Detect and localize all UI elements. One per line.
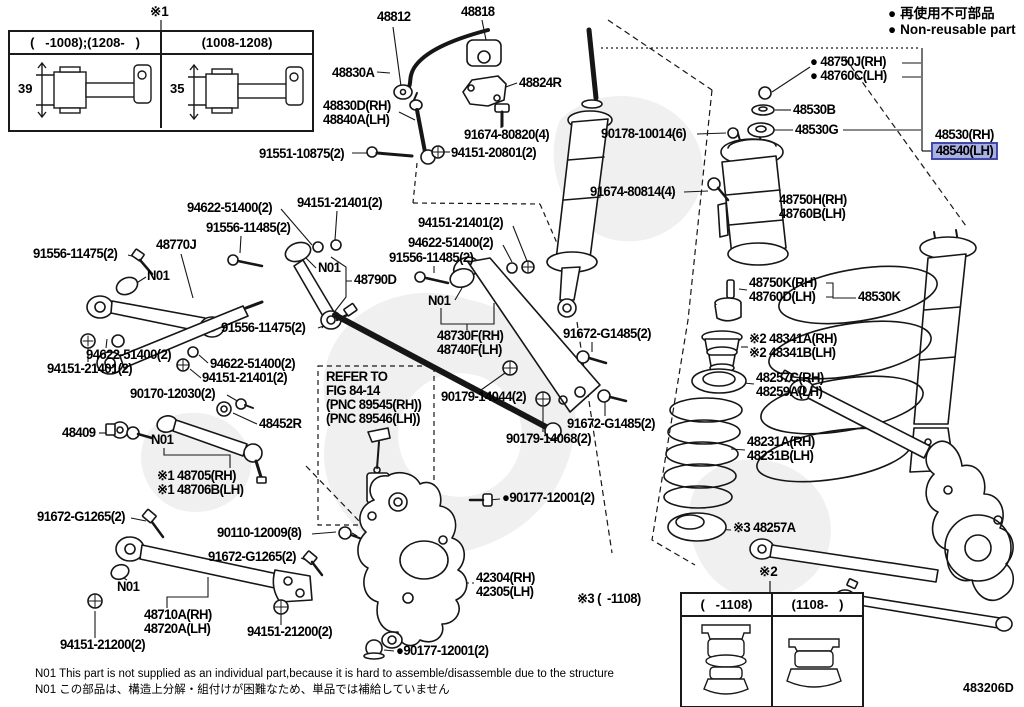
part-number-label[interactable]: 90178-10014(6) — [601, 127, 686, 141]
part-number-label[interactable]: 48818 — [461, 5, 495, 19]
note-label: N01 — [318, 261, 340, 275]
note-label: N01 — [117, 580, 139, 594]
note-label: ※3 ( -1108) — [577, 592, 641, 606]
part-number-label[interactable]: 91556-11475(2) — [33, 247, 117, 261]
part-number-label[interactable]: 91672-G1265(2) — [208, 550, 296, 564]
part-number-label[interactable]: 94622-51400(2) — [187, 201, 272, 215]
part-number-label[interactable]: 94151-21401(2) — [297, 196, 382, 210]
part-number-label[interactable]: 48750K(RH)48760D(LH) — [749, 276, 817, 304]
part-number-label[interactable]: 90179-14044(2) — [441, 390, 526, 404]
part-number-label[interactable]: ● 48750J(RH)● 48760C(LH) — [810, 55, 887, 83]
part-number-label[interactable]: 48409 — [62, 426, 96, 440]
part-number-label[interactable]: 91674-80820(4) — [464, 128, 549, 142]
note-label: N01 — [151, 433, 173, 447]
part-number-label[interactable]: 91556-11485(2) — [206, 221, 290, 235]
part-number-label[interactable]: 48830A — [332, 66, 374, 80]
part-number-label[interactable]: 91551-10875(2) — [259, 147, 344, 161]
note-label: N01 — [428, 294, 450, 308]
part-number-label[interactable]: 48540(LH) — [931, 142, 998, 160]
footnotes: N01 This part is not supplied as an indi… — [35, 666, 614, 698]
part-number-label[interactable]: 94151-21401(2) — [418, 216, 503, 230]
part-number-label[interactable]: 94151-21200(2) — [60, 638, 145, 652]
part-number-label[interactable]: 48824R — [519, 76, 561, 90]
part-number-label[interactable]: ●90177-12001(2) — [502, 491, 594, 505]
part-number-label[interactable]: 94622-51400(2) — [210, 357, 295, 371]
part-number-label[interactable]: 91674-80814(4) — [590, 185, 675, 199]
part-number-label[interactable]: 91672-G1485(2) — [563, 327, 651, 341]
note-label: REFER TOFIG 84-14(PNC 89545(RH))(PNC 895… — [326, 370, 421, 426]
part-number-label[interactable]: 48257C(RH)48259A(LH) — [756, 371, 824, 399]
part-number-label[interactable]: 91672-G1485(2) — [567, 417, 655, 431]
part-number-label[interactable]: 48231A(RH)48231B(LH) — [747, 435, 815, 463]
part-number-label[interactable]: 91672-G1265(2) — [37, 510, 125, 524]
part-number-label[interactable]: 42304(RH)42305(LH) — [476, 571, 535, 599]
part-number-label[interactable]: ※3 48257A — [733, 521, 796, 535]
document-code: 483206D — [963, 681, 1014, 695]
part-number-label[interactable]: 48710A(RH)48720A(LH) — [144, 608, 212, 636]
part-number-label[interactable]: 48730F(RH)48740F(LH) — [437, 329, 503, 357]
part-number-label[interactable]: 94622-51400(2) — [408, 236, 493, 250]
part-number-label[interactable]: 90179-14068(2) — [506, 432, 591, 446]
parts-diagram-page: ●再使用不可部品 ●Non-reusable part ※1 ( -1008);… — [0, 0, 1024, 707]
part-number-label[interactable]: 94151-21401(2) — [202, 371, 287, 385]
part-number-label[interactable]: 48830D(RH)48840A(LH) — [323, 99, 391, 127]
footnote-jp: N01 この部品は、構造上分解・組付けが困難なため、単品では補給していません — [35, 682, 614, 698]
part-number-label[interactable]: 48770J — [156, 238, 196, 252]
part-number-label[interactable]: 94151-21401(2) — [47, 362, 132, 376]
part-number-label[interactable]: ●90177-12001(2) — [396, 644, 488, 658]
part-number-label[interactable]: ※2 48341A(RH)※2 48341B(LH) — [749, 332, 837, 360]
part-number-label[interactable]: 91556-11475(2) — [221, 321, 305, 335]
part-number-label[interactable]: ※1 48705(RH)※1 48706B(LH) — [157, 469, 243, 497]
part-number-label[interactable]: 90110-12009(8) — [217, 526, 301, 540]
part-number-label[interactable]: 48530B — [793, 103, 835, 117]
part-number-label[interactable]: 90170-12030(2) — [130, 387, 215, 401]
part-number-label[interactable]: 48530G — [795, 123, 838, 137]
note-label: N01 — [147, 269, 169, 283]
part-number-label[interactable]: 94151-20801(2) — [451, 146, 536, 160]
labels-layer: 488124881848830A48824R48830D(RH)48840A(L… — [0, 0, 1024, 707]
part-number-label[interactable]: 48452R — [259, 417, 301, 431]
part-number-label[interactable]: 48812 — [377, 10, 411, 24]
footnote-en: N01 This part is not supplied as an indi… — [35, 666, 614, 682]
part-number-label[interactable]: 94151-21200(2) — [247, 625, 332, 639]
part-number-label[interactable]: 94622-51400(2) — [86, 348, 171, 362]
part-number-label[interactable]: 48530(RH) — [935, 128, 994, 142]
part-number-label[interactable]: 48750H(RH)48760B(LH) — [779, 193, 847, 221]
part-number-label[interactable]: 48530K — [858, 290, 900, 304]
part-number-label[interactable]: 91556-11485(2) — [389, 251, 473, 265]
part-number-label[interactable]: 48790D — [354, 273, 396, 287]
